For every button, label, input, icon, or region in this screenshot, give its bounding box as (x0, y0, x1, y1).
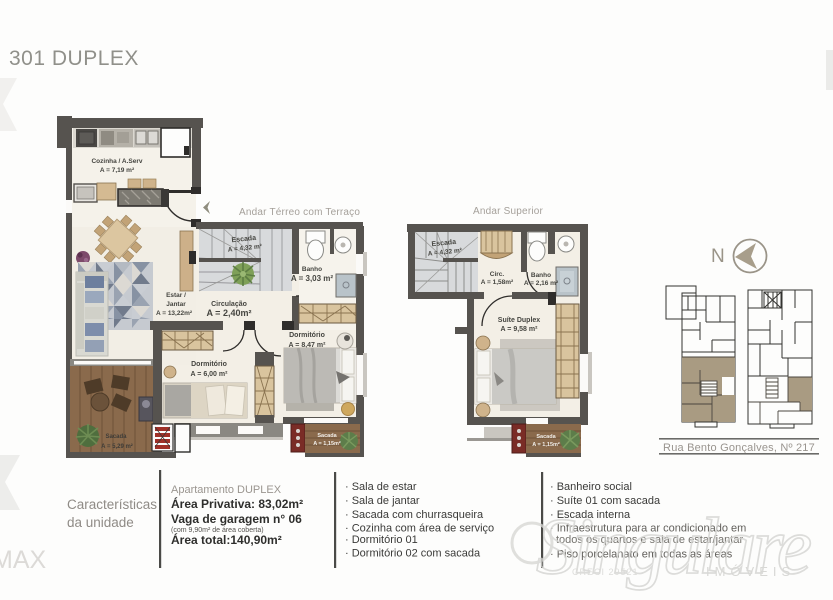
svg-text:Sacada: Sacada (105, 434, 127, 440)
svg-text:· Cozinha com área de serviço: · Cozinha com área de serviço (345, 523, 494, 535)
svg-text:A = 3,03 m²: A = 3,03 m² (291, 274, 334, 283)
svg-text:Sacada: Sacada (536, 434, 556, 440)
svg-text:Rua Bento Gonçalves, Nº 217: Rua Bento Gonçalves, Nº 217 (663, 442, 815, 454)
svg-text:Circulação: Circulação (211, 301, 247, 308)
svg-text:A = 9,58 m²: A = 9,58 m² (501, 326, 539, 333)
svg-text:MAX: MAX (0, 546, 47, 574)
svg-text:N: N (711, 246, 725, 267)
svg-text:Sacada: Sacada (317, 433, 337, 439)
svg-text:Circ.: Circ. (490, 271, 505, 278)
svg-text:Suíte Duplex: Suíte Duplex (498, 317, 541, 324)
svg-text:· Sacada com churrasqueira: · Sacada com churrasqueira (345, 509, 484, 521)
svg-text:· Banheiro social: · Banheiro social (550, 481, 632, 493)
svg-text:A = 2,40m²: A = 2,40m² (207, 308, 252, 318)
svg-text:A = 1,58m²: A = 1,58m² (481, 279, 514, 286)
svg-text:Estar /: Estar / (166, 292, 186, 299)
svg-text:Área Privativa: 83,02m²: Área Privativa: 83,02m² (171, 496, 303, 511)
svg-text:Características: Características (67, 497, 157, 512)
svg-text:Cozinha / A.Serv: Cozinha / A.Serv (91, 158, 142, 165)
svg-text:· Sala de jantar: · Sala de jantar (345, 495, 420, 507)
svg-text:A = 7,19 m²: A = 7,19 m² (100, 167, 135, 174)
svg-text:Vaga de garagem n° 06: Vaga de garagem n° 06 (171, 512, 302, 526)
svg-text:A = 13,22m²: A = 13,22m² (156, 310, 193, 317)
svg-text:A = 1,15m²: A = 1,15m² (532, 441, 560, 448)
svg-text:· Sala de estar: · Sala de estar (345, 481, 417, 493)
svg-text:Apartamento DUPLEX: Apartamento DUPLEX (171, 484, 282, 496)
svg-text:Dormitório: Dormitório (191, 361, 227, 368)
svg-text:· Dormitório 01: · Dormitório 01 (345, 534, 418, 546)
svg-text:Dormitório: Dormitório (289, 332, 325, 339)
svg-text:CRECI 29521: CRECI 29521 (572, 567, 639, 577)
svg-text:Banho: Banho (531, 272, 551, 279)
svg-text:301 DUPLEX: 301 DUPLEX (9, 47, 139, 70)
svg-text:Banho: Banho (302, 266, 322, 273)
svg-text:Andar Térreo com Terraço: Andar Térreo com Terraço (239, 207, 360, 218)
svg-text:Andar Superior: Andar Superior (473, 206, 544, 217)
svg-text:· Dormitório 02 com sacada: · Dormitório 02 com sacada (345, 548, 481, 560)
svg-text:A = 6,00 m²: A = 6,00 m² (191, 371, 229, 378)
svg-text:A = 2,16 m²: A = 2,16 m² (524, 280, 559, 287)
svg-text:Área total:140,90m²: Área total:140,90m² (171, 532, 282, 547)
svg-text:A = 1,15m²: A = 1,15m² (313, 440, 341, 447)
svg-text:da unidade: da unidade (67, 515, 134, 530)
svg-text:A = 5,29 m²: A = 5,29 m² (101, 443, 133, 450)
svg-text:Jantar: Jantar (166, 301, 186, 308)
svg-text:IMÓVEIS: IMÓVEIS (706, 564, 795, 579)
